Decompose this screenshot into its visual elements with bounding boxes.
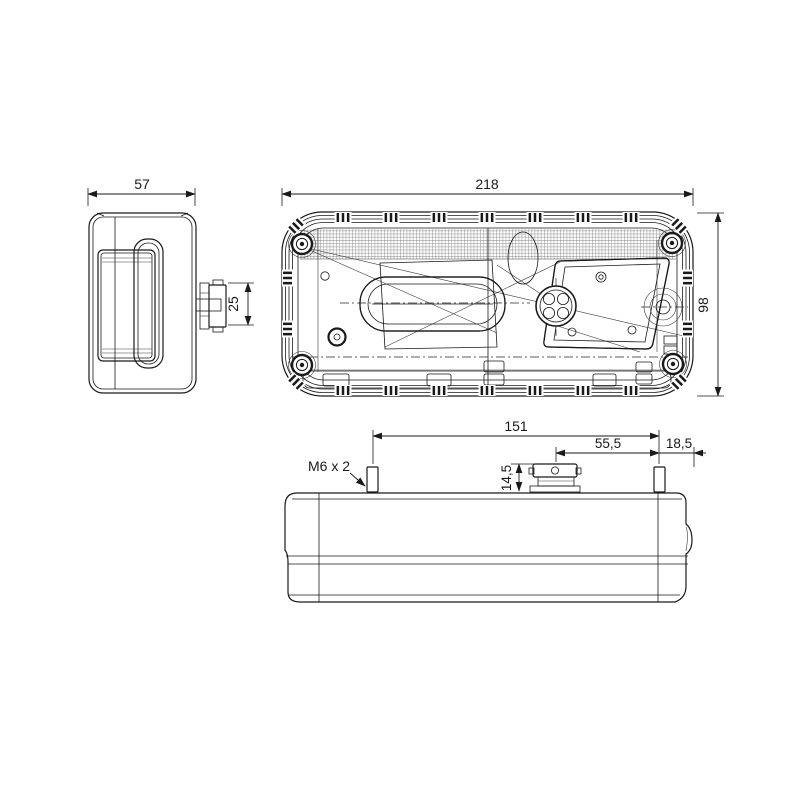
technical-drawing-page: 57 — [0, 0, 800, 800]
dimension-stud-to-edge: 18,5 — [647, 436, 706, 467]
dim-side-width-value: 57 — [134, 176, 150, 192]
dimension-front-width: 218 — [282, 176, 693, 206]
side-lens — [98, 250, 155, 361]
front-view: 218 98 — [282, 176, 724, 396]
side-bracket — [134, 239, 163, 368]
dim-stud-spacing-value: 151 — [504, 418, 528, 434]
mounting-stud-left — [367, 467, 378, 492]
stud-thread-text: M6 x 2 — [308, 458, 350, 474]
mounting-stud-right — [654, 467, 665, 492]
stud-thread-label: M6 x 2 — [308, 458, 365, 486]
drain-hole — [329, 329, 346, 346]
side-view: 57 — [88, 176, 254, 393]
bottom-body-outline — [285, 493, 692, 602]
lamp-technical-drawing: 57 — [0, 0, 800, 800]
dimension-side-width: 57 — [88, 176, 195, 206]
bottom-connector — [529, 464, 581, 492]
dim-connector-to-stud-value: 55,5 — [595, 436, 621, 451]
dim-connector-height-value: 14,5 — [499, 465, 514, 491]
dim-front-height-value: 98 — [695, 297, 711, 313]
small-screw — [321, 272, 329, 280]
dimension-connector-depth: 25 — [225, 283, 254, 325]
dimension-connector-to-stud: 55,5 — [556, 436, 659, 462]
dim-stud-to-edge-value: 18,5 — [666, 436, 692, 451]
dim-connector-depth-value: 25 — [225, 296, 241, 312]
dim-front-width-value: 218 — [475, 176, 499, 192]
round-connector — [536, 286, 576, 326]
bottom-view: 151 55,5 18,5 14,5 M6 x 2 — [285, 418, 706, 602]
side-connector — [196, 280, 226, 332]
dimension-front-height: 98 — [695, 213, 724, 396]
right-boss — [644, 288, 682, 354]
reflex-strip — [303, 361, 671, 388]
